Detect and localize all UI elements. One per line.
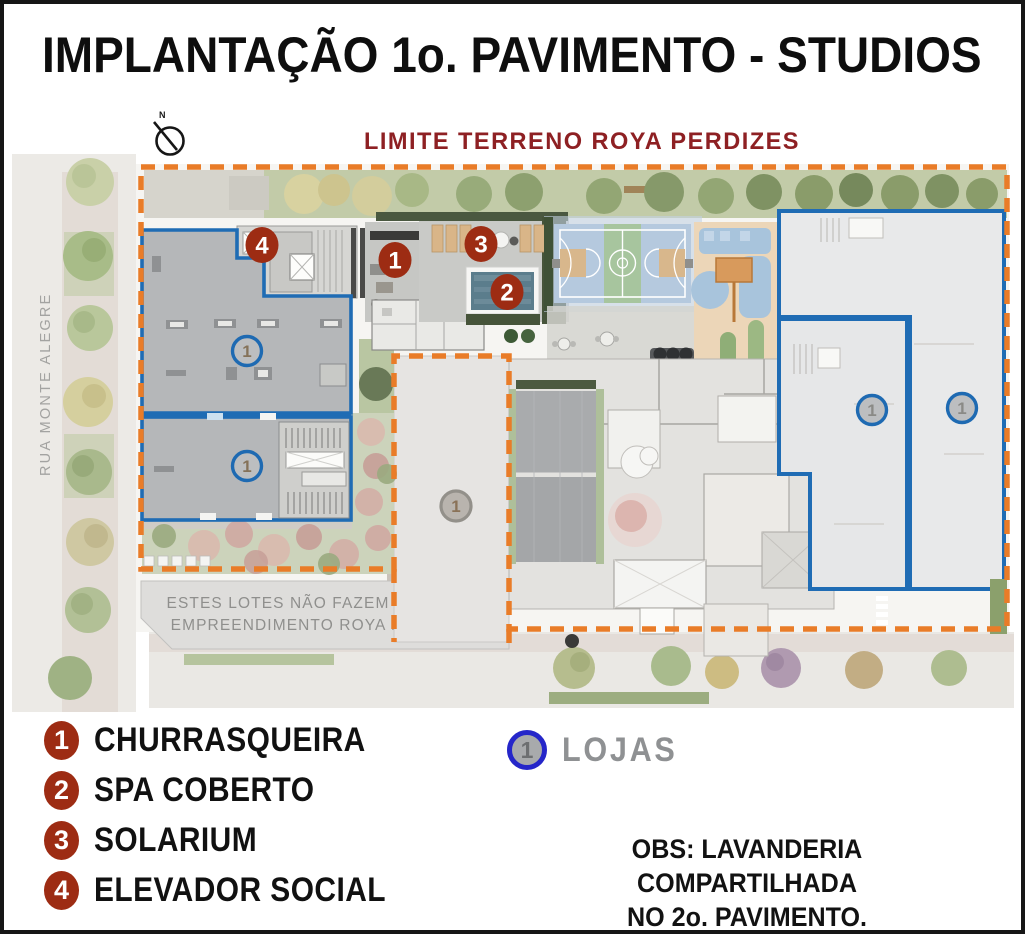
obs-note: OBS: LAVANDERIA COMPARTILHADA NO 2o. PAV…	[521, 832, 973, 934]
legend-label: CHURRASQUEIRA	[94, 721, 366, 760]
north-icon: N	[154, 110, 184, 155]
brochure-page: IMPLANTAÇÃO 1o. PAVIMENTO - STUDIOS RUA …	[0, 0, 1025, 934]
lojas-label: LOJAS	[562, 731, 678, 770]
legend-item-elevador-social: 4 ELEVADOR SOCIAL	[44, 868, 426, 912]
obs-line1: OBS: LAVANDERIA COMPARTILHADA	[521, 832, 973, 900]
shop-marker-label: 1	[242, 342, 251, 361]
shop-marker-label: 1	[957, 399, 966, 418]
street-name: RUA MONTE ALEGRE	[38, 293, 54, 476]
legend-label: ELEVADOR SOCIAL	[94, 871, 386, 910]
legend-marker-4: 4	[44, 871, 79, 910]
boundary-label: LIMITE TERRENO ROYA PERDIZES	[364, 128, 800, 155]
shop-marker-label: 1	[867, 401, 876, 420]
amenity-marker-label: 2	[500, 280, 513, 307]
legend-item-solarium: 3 SOLARIUM	[44, 818, 279, 862]
legend-label: SPA COBERTO	[94, 771, 314, 810]
amenity-marker-label: 1	[388, 248, 401, 275]
legend-marker-1: 1	[44, 721, 79, 760]
lot-marker-label: 1	[451, 497, 460, 516]
legend-marker-2: 2	[44, 771, 79, 810]
legend-label: SOLARIUM	[94, 821, 257, 860]
sports-court	[544, 216, 702, 312]
page-title: IMPLANTAÇÃO 1o. PAVIMENTO - STUDIOS	[42, 26, 982, 84]
legend-marker-3: 3	[44, 821, 79, 860]
legend-item-lojas: 1 LOJAS	[507, 728, 690, 772]
amenity-marker-label: 4	[255, 233, 269, 260]
left-street: RUA MONTE ALEGRE	[12, 154, 136, 712]
site-plan: RUA MONTE ALEGRE	[4, 100, 1025, 720]
north-label: N	[159, 110, 166, 120]
legend-item-spa-coberto: 2 SPA COBERTO	[44, 768, 344, 812]
lot-marker: 1	[441, 491, 471, 521]
amenity-marker-label: 3	[474, 232, 487, 259]
shop-marker-label: 1	[242, 457, 251, 476]
legend-item-churrasqueira: 1 CHURRASQUEIRA	[44, 718, 403, 762]
obs-line2: NO 2o. PAVIMENTO.	[521, 900, 973, 934]
lojas-marker: 1	[507, 730, 547, 770]
